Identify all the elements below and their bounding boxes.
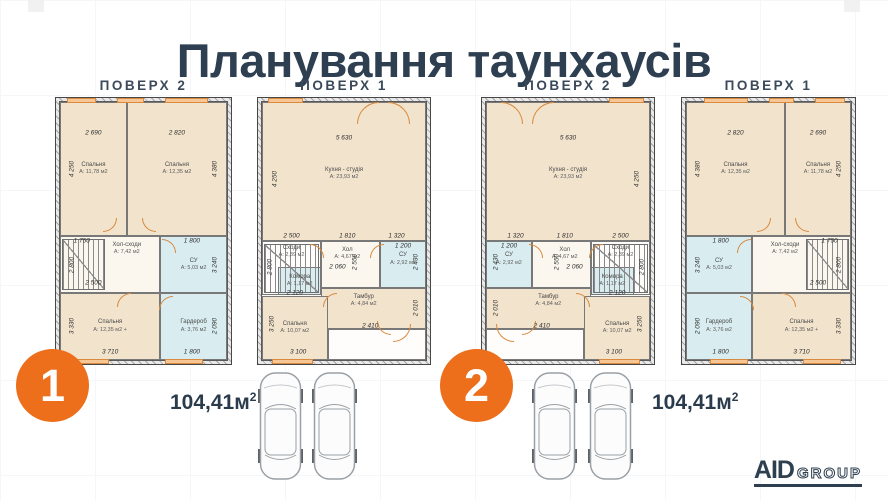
window bbox=[704, 98, 747, 103]
decorative-square bbox=[844, 0, 860, 12]
dimension-label: 1 800 bbox=[184, 349, 200, 356]
dimension-label: 2 800 bbox=[267, 259, 274, 275]
window bbox=[165, 98, 209, 103]
dimension-label: 2 410 bbox=[362, 323, 378, 330]
dimension-label: 3 250 bbox=[637, 316, 644, 332]
area-value: 104,41м bbox=[170, 391, 250, 414]
dimension-label: 4 250 bbox=[68, 161, 75, 177]
window bbox=[117, 98, 143, 103]
dimension-label: 2 410 bbox=[534, 323, 550, 330]
room-area: А: 2,92 м2 bbox=[496, 260, 522, 267]
plan-interior: СпальняА: 12,35 м2СпальняА: 11,78 м2СУА:… bbox=[686, 102, 851, 360]
decorative-square bbox=[28, 0, 44, 12]
room-label: СпальняА: 10,07 м2 bbox=[280, 321, 309, 335]
room-label: СпальняА: 12,35 м2 bbox=[721, 162, 750, 176]
room-label: Кухня - студіяА: 23,93 м2 bbox=[325, 167, 363, 181]
area-value: 104,41м bbox=[652, 391, 732, 414]
dimension-label: 2 120 bbox=[287, 289, 303, 296]
logo-aid-text: AID bbox=[754, 458, 794, 483]
car-top-view-icon bbox=[257, 371, 304, 481]
dimension-label: 2 690 bbox=[810, 129, 826, 136]
room-area: А: 4,84 м2 bbox=[535, 301, 561, 308]
total-area-2: 104,41м2 bbox=[652, 390, 738, 415]
room-name: СУ bbox=[181, 258, 207, 265]
dimension-label: 2 090 bbox=[212, 318, 219, 334]
dimension-label: 2 060 bbox=[329, 264, 345, 271]
dimension-label: 4 380 bbox=[212, 161, 219, 177]
window bbox=[609, 98, 643, 103]
room-area: А: 2,39 м2 bbox=[279, 252, 305, 259]
unit-badge-2: 2 bbox=[440, 349, 513, 422]
room-name: Комора bbox=[287, 274, 313, 281]
plan-interior: Кухня - студіяА: 23,93 м2СходиА: 2,39 м2… bbox=[486, 102, 650, 360]
room-name: СУ bbox=[496, 252, 522, 259]
plan-header: ПОВЕРХ 1 bbox=[667, 78, 870, 93]
room-name: Спальня bbox=[721, 162, 750, 169]
room-name: Комора bbox=[599, 274, 625, 281]
dimension-label: 2 550 bbox=[553, 254, 560, 270]
room-area: А: 5,03 м2 bbox=[706, 265, 732, 272]
dimension-label: 2 800 bbox=[68, 256, 75, 272]
room-area: А: 23,93 м2 bbox=[549, 175, 587, 182]
room-label: Кухня - студіяА: 23,93 м2 bbox=[549, 167, 587, 181]
room-area: А: 7,42 м2 bbox=[771, 249, 800, 256]
dimension-label: 3 710 bbox=[793, 349, 809, 356]
room-area: А: 5,03 м2 bbox=[181, 265, 207, 272]
logo-group-text: GROUP bbox=[797, 466, 862, 481]
dimension-label: 4 380 bbox=[694, 161, 701, 177]
room-label: ГардеробА: 3,76 м2 bbox=[180, 320, 206, 334]
dimension-label: 5 630 bbox=[560, 135, 576, 142]
dimension-label: 2 820 bbox=[727, 129, 743, 136]
room-area: А: 11,78 м2 bbox=[79, 169, 107, 176]
room-area: А: 3,76 м2 bbox=[706, 327, 732, 334]
dimension-label: 5 630 bbox=[336, 135, 352, 142]
dimension-label: 3 330 bbox=[836, 318, 843, 334]
window bbox=[272, 359, 313, 364]
dimension-label: 2 690 bbox=[85, 129, 101, 136]
unit-number: 2 bbox=[464, 360, 489, 412]
window bbox=[769, 98, 795, 103]
room-name: Сходи bbox=[608, 245, 634, 252]
dimension-label: 2 500 bbox=[612, 233, 628, 240]
dimension-label: 2 500 bbox=[85, 279, 101, 286]
room-label: КомораА: 1,17 м2 bbox=[599, 274, 625, 288]
area-sup: 2 bbox=[732, 390, 739, 404]
plan-header: ПОВЕРХ 1 bbox=[243, 78, 445, 93]
room-label: СУА: 2,92 м2 bbox=[496, 252, 522, 266]
dimension-label: 4 250 bbox=[272, 171, 279, 187]
room-label: Хол-сходиА: 7,42 м2 bbox=[771, 242, 800, 256]
floorplan: ПОВЕРХ 1Кухня - студіяА: 23,93 м2СходиА:… bbox=[257, 97, 431, 365]
room-label: СпальняА: 10,07 м2 bbox=[603, 321, 632, 335]
dimension-label: 3 330 bbox=[68, 318, 75, 334]
dimension-label: 1 320 bbox=[507, 233, 523, 240]
room-name: Кухня - студія bbox=[549, 167, 587, 174]
floorplan: ПОВЕРХ 2Кухня - студіяА: 23,93 м2СходиА:… bbox=[481, 97, 655, 365]
room-name: СУ bbox=[706, 258, 732, 265]
room-area: А: 4,84 м2 bbox=[351, 301, 377, 308]
dimension-label: 2 120 bbox=[609, 289, 625, 296]
room-label: СпальняА: 11,78 м2 bbox=[804, 162, 832, 176]
dimension-label: 2 060 bbox=[566, 264, 582, 271]
room-name: Кухня - студія bbox=[325, 167, 363, 174]
window bbox=[815, 98, 844, 103]
plan-header: ПОВЕРХ 2 bbox=[467, 78, 669, 93]
room-label: СпальняА: 11,78 м2 bbox=[79, 162, 107, 176]
room-label: КомораА: 1,17 м2 bbox=[287, 274, 313, 288]
room-name: Спальня bbox=[603, 321, 632, 328]
dimension-label: 2 800 bbox=[638, 259, 645, 275]
car-top-view-icon bbox=[531, 371, 578, 481]
room-label: СходиА: 2,39 м2 bbox=[279, 245, 305, 259]
dimension-label: 2 010 bbox=[413, 300, 420, 316]
room-name: Сходи bbox=[279, 245, 305, 252]
room-area: А: 3,76 м2 bbox=[180, 327, 206, 334]
window bbox=[268, 98, 302, 103]
plan-header: ПОВЕРХ 2 bbox=[41, 78, 246, 93]
room-area: А: 12,35 м2 + bbox=[785, 327, 819, 334]
room-name: Спальня bbox=[79, 162, 107, 169]
dimension-label: 2 500 bbox=[283, 233, 299, 240]
room-name: Гардероб bbox=[706, 320, 732, 327]
dimension-label: 2 090 bbox=[694, 318, 701, 334]
window bbox=[67, 98, 97, 103]
room-name: Тамбур bbox=[351, 294, 377, 301]
dimension-label: 3 100 bbox=[606, 349, 622, 356]
dimension-label: 2 430 bbox=[492, 254, 499, 270]
dimension-label: 1 800 bbox=[713, 349, 729, 356]
room-area: А: 10,07 м2 bbox=[603, 328, 632, 335]
room-name: Хол-сходи bbox=[771, 242, 800, 249]
room-label: СпальняА: 12,35 м2 bbox=[162, 162, 191, 176]
dimension-label: 1 200 bbox=[395, 243, 411, 250]
floorplan: ПОВЕРХ 2СпальняА: 11,78 м2СпальняА: 12,3… bbox=[55, 97, 232, 365]
room-area: А: 7,42 м2 bbox=[112, 249, 141, 256]
car-top-view-icon bbox=[311, 371, 358, 481]
unit-number: 1 bbox=[40, 360, 65, 412]
dimension-label: 1 750 bbox=[821, 238, 837, 245]
dimension-label: 3 240 bbox=[212, 256, 219, 272]
room-name: Спальня bbox=[804, 162, 832, 169]
room-name: Спальня bbox=[280, 321, 309, 328]
room-label: СходиА: 2,39 м2 bbox=[608, 245, 634, 259]
dimension-label: 1 810 bbox=[339, 233, 355, 240]
room-name: Тамбур bbox=[535, 294, 561, 301]
window bbox=[165, 359, 204, 364]
dimension-label: 2 430 bbox=[413, 254, 420, 270]
room-label: СпальняА: 12,35 м2 + bbox=[785, 320, 819, 334]
dimension-label: 1 800 bbox=[713, 238, 729, 245]
car-top-view-icon bbox=[587, 371, 634, 481]
room-label: СУА: 5,03 м2 bbox=[706, 258, 732, 272]
dimension-label: 3 710 bbox=[102, 349, 118, 356]
room-area: А: 1,17 м2 bbox=[287, 282, 313, 289]
floorplan: ПОВЕРХ 1СпальняА: 12,35 м2СпальняА: 11,7… bbox=[681, 97, 856, 365]
dimension-label: 1 800 bbox=[184, 238, 200, 245]
dimension-label: 1 200 bbox=[501, 243, 517, 250]
window bbox=[710, 359, 748, 364]
dimension-label: 3 250 bbox=[268, 316, 275, 332]
room-label: СпальняА: 12,35 м2 + bbox=[93, 320, 127, 334]
dimension-label: 2 550 bbox=[352, 254, 359, 270]
room-area: А: 12,35 м2 bbox=[721, 169, 750, 176]
room-label: Хол-сходиА: 7,42 м2 bbox=[112, 242, 141, 256]
room-label: СУА: 5,03 м2 bbox=[181, 258, 207, 272]
dimension-label: 2 820 bbox=[169, 129, 185, 136]
dimension-label: 1 750 bbox=[74, 238, 90, 245]
room-area: А: 10,07 м2 bbox=[280, 328, 309, 335]
room-area: А: 23,93 м2 bbox=[325, 175, 363, 182]
poster-page: Планування таунхаусів ПОВЕРХ 2СпальняА: … bbox=[0, 0, 888, 500]
room-name: Гардероб bbox=[180, 320, 206, 327]
dimension-label: 1 810 bbox=[557, 233, 573, 240]
room-area: А: 12,35 м2 + bbox=[93, 327, 127, 334]
room-label: ТамбурА: 4,84 м2 bbox=[535, 294, 561, 308]
dimension-label: 1 320 bbox=[388, 233, 404, 240]
area-sup: 2 bbox=[250, 390, 257, 404]
dimension-label: 2 010 bbox=[492, 300, 499, 316]
dimension-label: 4 250 bbox=[836, 161, 843, 177]
plan-interior: Кухня - студіяА: 23,93 м2СходиА: 2,39 м2… bbox=[262, 102, 426, 360]
room-area: А: 2,39 м2 bbox=[608, 252, 634, 259]
room-label: ГардеробА: 3,76 м2 bbox=[706, 320, 732, 334]
aid-group-logo: AID GROUP bbox=[754, 458, 862, 487]
room-label: ТамбурА: 4,84 м2 bbox=[351, 294, 377, 308]
room-name: Спальня bbox=[162, 162, 191, 169]
dimension-label: 4 250 bbox=[633, 171, 640, 187]
room-area: А: 12,35 м2 bbox=[162, 169, 191, 176]
room-area: А: 11,78 м2 bbox=[804, 169, 832, 176]
room-area: А: 1,17 м2 bbox=[599, 282, 625, 289]
dimension-label: 3 100 bbox=[290, 349, 306, 356]
room-name: Спальня bbox=[93, 320, 127, 327]
window bbox=[599, 359, 640, 364]
dimension-label: 3 240 bbox=[694, 256, 701, 272]
total-area-1: 104,41м2 bbox=[170, 390, 256, 415]
dimension-label: 2 800 bbox=[836, 256, 843, 272]
dimension-label: 2 500 bbox=[810, 279, 826, 286]
unit-badge-1: 1 bbox=[16, 349, 89, 422]
room-name: Спальня bbox=[785, 320, 819, 327]
window bbox=[803, 359, 841, 364]
room-name: Хол-сходи bbox=[112, 242, 141, 249]
plan-interior: СпальняА: 11,78 м2СпальняА: 12,35 м2Хол-… bbox=[60, 102, 227, 360]
room bbox=[328, 329, 426, 360]
